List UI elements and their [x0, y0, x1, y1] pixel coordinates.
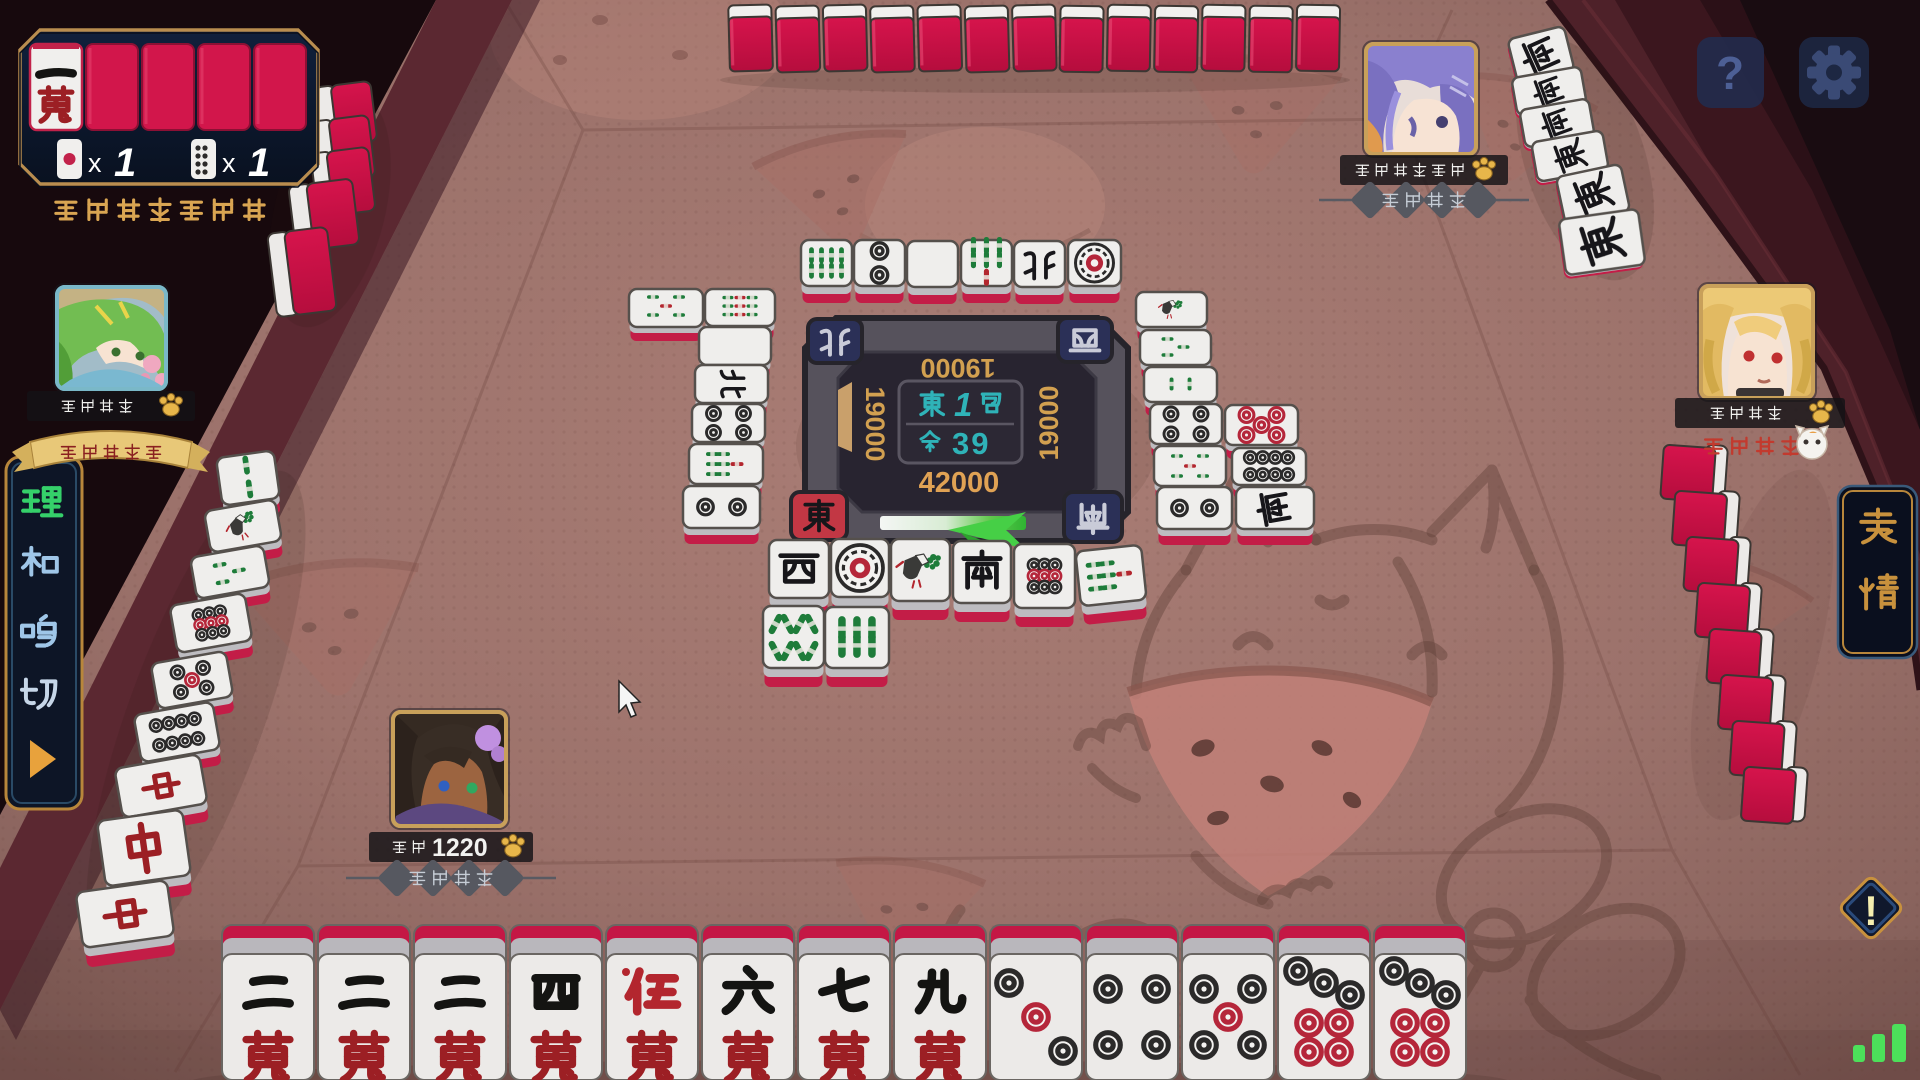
svg-text:42000: 42000: [919, 467, 1000, 499]
svg-text:1: 1: [248, 141, 270, 185]
svg-text:1220: 1220: [432, 834, 488, 862]
svg-text:x: x: [88, 148, 102, 178]
svg-text:19000: 19000: [860, 386, 890, 461]
svg-text:?: ?: [1716, 47, 1744, 99]
svg-text:!: !: [1864, 887, 1878, 934]
svg-text:1: 1: [114, 141, 136, 185]
svg-text:1: 1: [954, 386, 972, 423]
svg-text:19000: 19000: [920, 353, 995, 383]
svg-text:x: x: [222, 148, 236, 178]
svg-text:19000: 19000: [1034, 385, 1064, 460]
svg-text:39: 39: [952, 426, 990, 461]
